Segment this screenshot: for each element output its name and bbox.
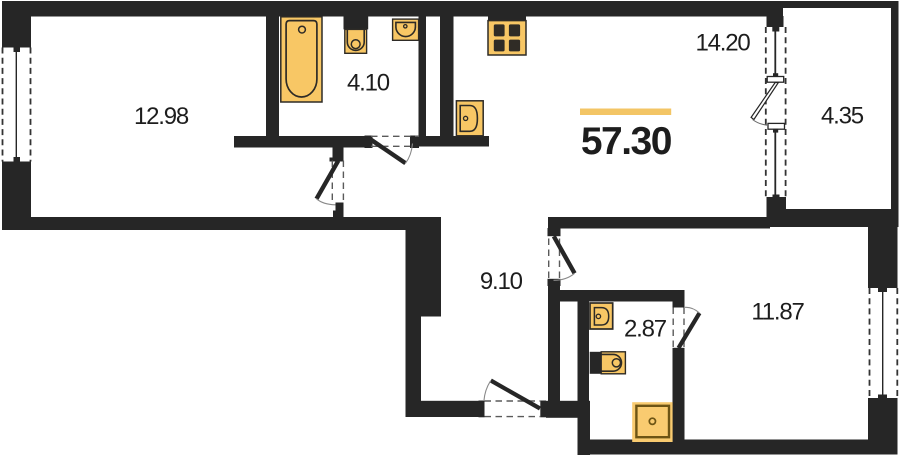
svg-text:11.87: 11.87 [751,299,804,326]
svg-text:4.35: 4.35 [821,103,864,130]
svg-text:4.10: 4.10 [347,70,390,97]
svg-text:14.20: 14.20 [695,30,750,57]
svg-text:12.98: 12.98 [134,103,189,130]
svg-text:2.87: 2.87 [624,316,667,343]
svg-text:57.30: 57.30 [581,120,672,163]
svg-text:9.10: 9.10 [480,268,523,295]
